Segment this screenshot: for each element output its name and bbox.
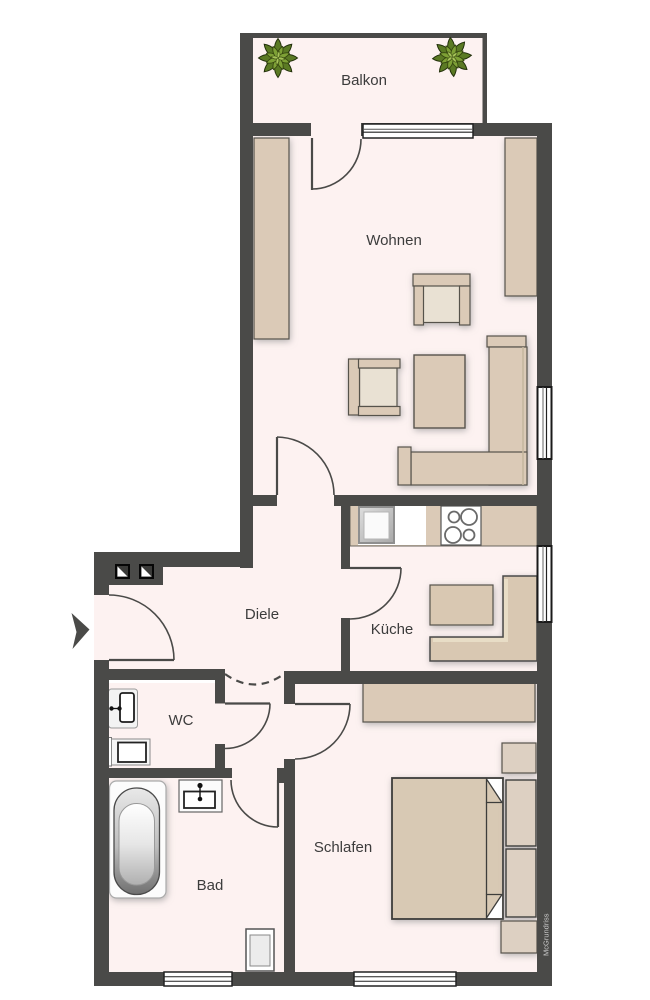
svg-text:Wohnen: Wohnen xyxy=(366,232,422,249)
svg-text:Balkon: Balkon xyxy=(341,72,387,89)
svg-text:Diele: Diele xyxy=(245,606,279,623)
svg-text:WC: WC xyxy=(169,712,194,729)
svg-text:McGrundriss: McGrundriss xyxy=(542,913,551,956)
svg-text:Bad: Bad xyxy=(197,877,224,894)
svg-text:Schlafen: Schlafen xyxy=(314,839,372,856)
svg-text:Küche: Küche xyxy=(371,621,414,638)
